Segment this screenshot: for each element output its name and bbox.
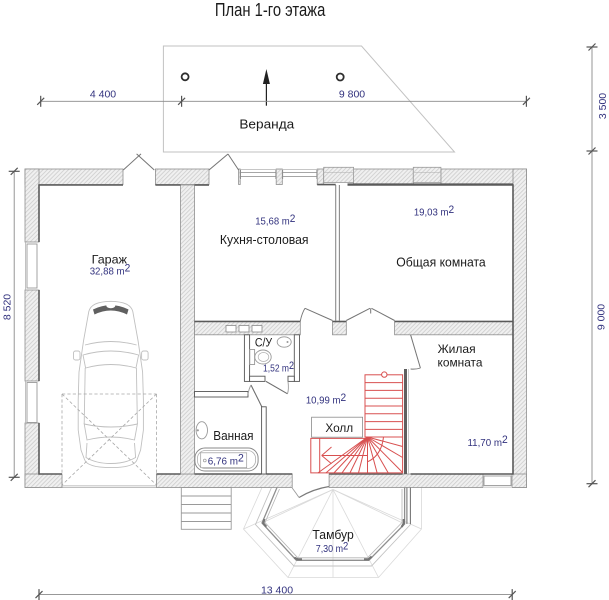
svg-text:8 520: 8 520 bbox=[1, 294, 13, 320]
svg-text:Общая комната: Общая комната bbox=[396, 255, 486, 270]
svg-text:План 1-го этажа: План 1-го этажа bbox=[215, 0, 326, 20]
svg-text:Ванная: Ванная bbox=[213, 429, 253, 443]
svg-text:13 400: 13 400 bbox=[261, 585, 293, 597]
svg-text:3 500: 3 500 bbox=[597, 93, 609, 119]
svg-text:Гараж: Гараж bbox=[92, 253, 127, 267]
svg-text:С/У: С/У bbox=[255, 335, 273, 349]
svg-text:Веранда: Веранда bbox=[239, 116, 295, 131]
svg-text:комната: комната bbox=[438, 356, 483, 370]
svg-text:4 400: 4 400 bbox=[90, 88, 116, 100]
svg-text:9 000: 9 000 bbox=[596, 304, 608, 330]
svg-text:Жилая: Жилая bbox=[438, 342, 476, 356]
svg-text:Кухня-столовая: Кухня-столовая bbox=[220, 233, 309, 247]
svg-text:9 800: 9 800 bbox=[339, 88, 365, 100]
svg-text:Холл: Холл bbox=[325, 421, 353, 435]
